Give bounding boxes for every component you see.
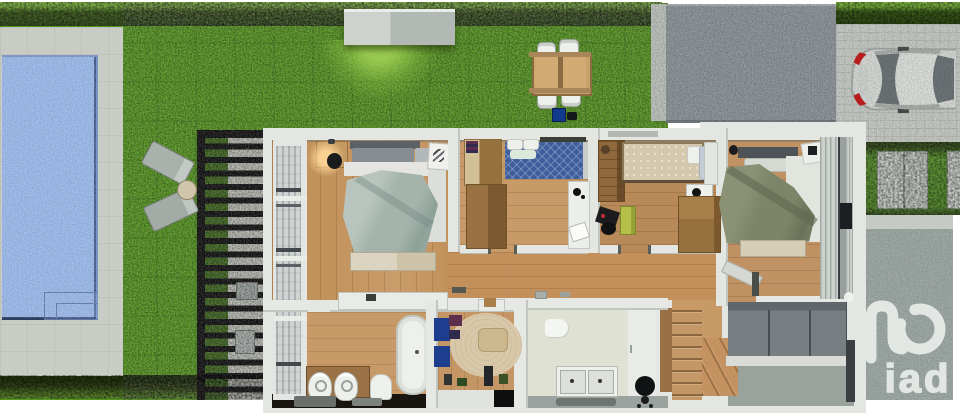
svg-text:iad: iad bbox=[885, 357, 952, 401]
